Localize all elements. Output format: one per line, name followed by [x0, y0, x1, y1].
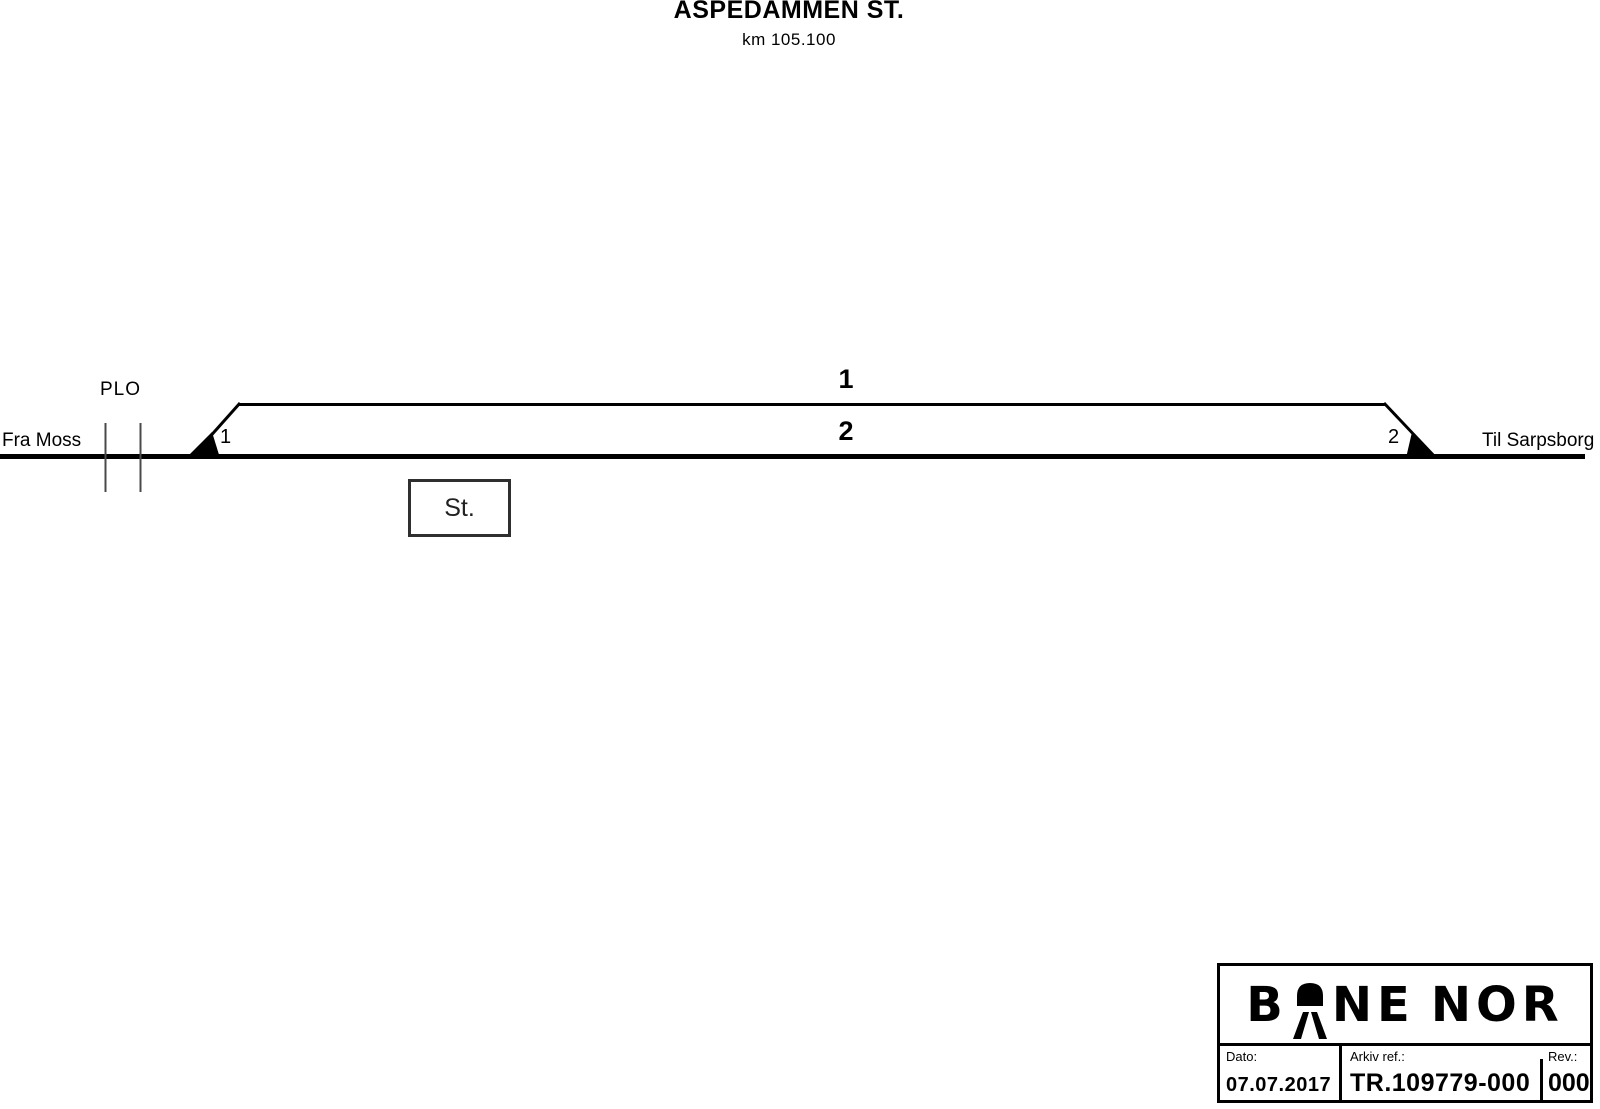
- revision-cell: Rev.: 000: [1540, 1046, 1590, 1100]
- direction-from-label: Fra Moss: [2, 430, 81, 452]
- date-value: 07.07.2017: [1226, 1075, 1333, 1098]
- logo-letters-ne: NE: [1332, 981, 1415, 1029]
- revision-value: 000: [1548, 1071, 1584, 1098]
- logo-letter-b: B: [1246, 981, 1288, 1029]
- station-schematic-page: ASPEDAMMEN ST. km 105.100 PLO Fra Moss T…: [0, 0, 1600, 1109]
- switch-1-number: 1: [220, 426, 231, 449]
- track-2-number: 2: [833, 416, 859, 447]
- bane-nor-logo: B NE NOR: [1220, 966, 1590, 1046]
- bane-nor-logo-text: B NE NOR: [1246, 976, 1564, 1034]
- date-cell: Dato: 07.07.2017: [1220, 1046, 1342, 1100]
- archive-ref-label: Arkiv ref.:: [1350, 1049, 1534, 1064]
- archive-ref-cell: Arkiv ref.: TR.109779-000: [1342, 1046, 1540, 1100]
- bane-nor-a-track-icon: [1290, 982, 1330, 1040]
- revision-label: Rev.:: [1548, 1049, 1584, 1064]
- track-diagram: [0, 0, 1600, 1109]
- logo-letters-nor: NOR: [1431, 981, 1564, 1029]
- title-block: B NE NOR Dato: 07.07.2017 Arkiv re: [1217, 963, 1593, 1103]
- switch-1-wedge-icon: [186, 432, 220, 458]
- switch-2-wedge-icon: [1406, 432, 1438, 458]
- title-block-fields: Dato: 07.07.2017 Arkiv ref.: TR.109779-0…: [1220, 1046, 1590, 1100]
- station-building-label: St.: [444, 494, 475, 523]
- switch-2-number: 2: [1388, 426, 1399, 449]
- station-building-box: St.: [408, 479, 511, 537]
- level-crossing-label: PLO: [100, 379, 141, 401]
- track-1-number: 1: [833, 364, 859, 395]
- direction-to-label: Til Sarpsborg: [1482, 430, 1594, 452]
- archive-ref-value: TR.109779-000: [1350, 1071, 1534, 1098]
- date-label: Dato:: [1226, 1049, 1333, 1064]
